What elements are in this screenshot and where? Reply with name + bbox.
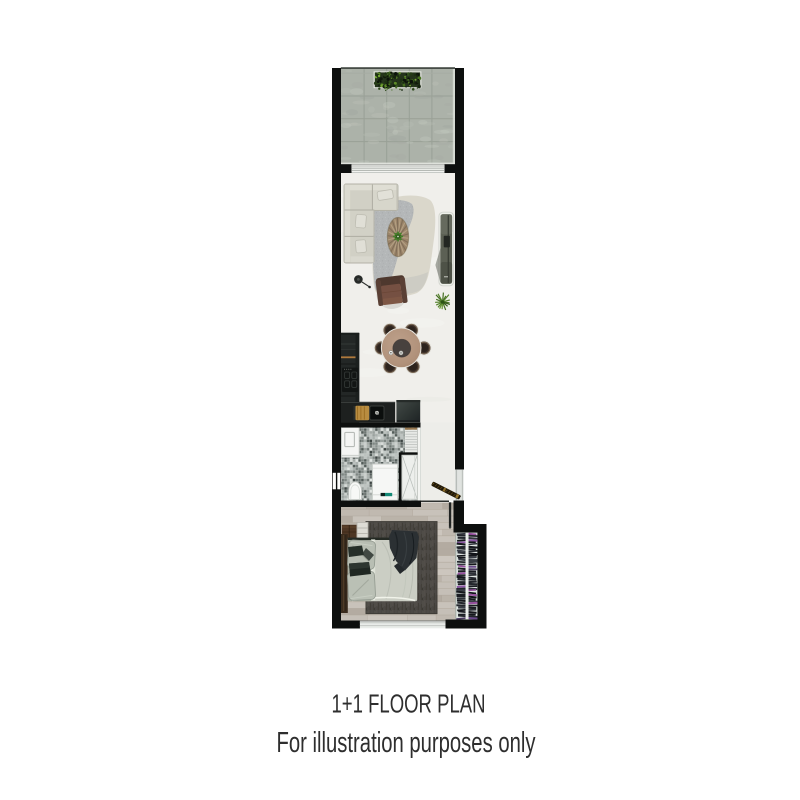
svg-text:For illustration purposes only: For illustration purposes only [277, 727, 537, 759]
svg-text:1+1 FLOOR PLAN: 1+1 FLOOR PLAN [332, 689, 486, 719]
